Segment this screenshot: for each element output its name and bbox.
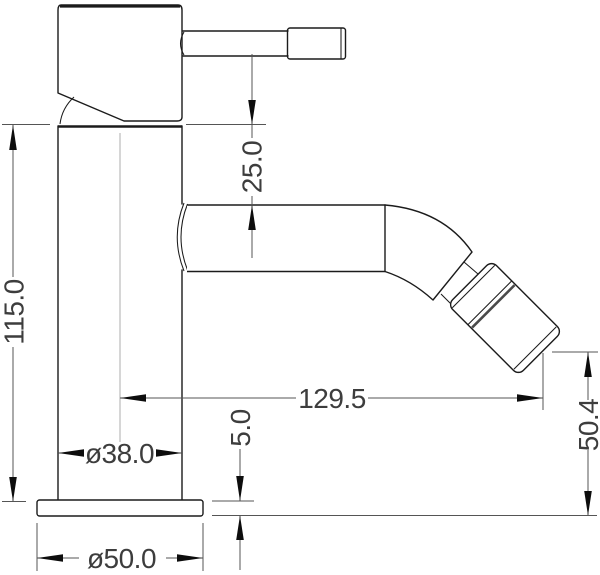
knurled-grip xyxy=(288,28,346,59)
technical-drawing-page: 115.0 25.0 129.5 50.4 ø38.0 xyxy=(0,0,600,575)
handle-housing xyxy=(58,5,182,124)
arrow-down-icon xyxy=(236,476,244,501)
arrow-down-icon xyxy=(9,477,17,502)
arrow-right-icon xyxy=(177,554,203,562)
dim-outlet-height: 50.4 xyxy=(552,352,600,516)
arrow-left-icon xyxy=(120,394,146,402)
dim-base-thickness-label: 5.0 xyxy=(225,409,256,446)
dim-body-diameter: ø38.0 xyxy=(58,438,182,469)
aerator-body xyxy=(448,261,563,376)
spout-body-junction-arcs xyxy=(177,203,187,271)
arrow-right-icon xyxy=(156,449,182,457)
handle-housing-outline xyxy=(58,5,182,121)
lever-arm xyxy=(183,31,288,56)
dim-overall-height: 115.0 xyxy=(0,125,50,502)
dim-spout-reach: 129.5 xyxy=(120,353,543,414)
housing-cut-arc xyxy=(60,97,74,124)
base-plate xyxy=(37,500,203,516)
base-plate-outline xyxy=(37,500,203,516)
arrow-down-icon xyxy=(248,100,256,125)
dim-overall-height-label: 115.0 xyxy=(0,279,29,345)
arrow-left-icon xyxy=(58,449,84,457)
dim-base-diameter: ø50.0 xyxy=(37,523,203,574)
spout-tube xyxy=(187,205,472,300)
dim-base-thickness: 5.0 xyxy=(212,409,256,570)
arrow-left-icon xyxy=(37,554,63,562)
mixer-tap-technical-drawing: 115.0 25.0 129.5 50.4 ø38.0 xyxy=(0,0,600,575)
dim-spout-reach-label: 129.5 xyxy=(298,383,366,414)
arrow-up-icon xyxy=(9,125,17,150)
dim-base-thickness-lines xyxy=(212,449,254,570)
dim-base-diameter-label: ø50.0 xyxy=(87,543,156,574)
dim-spout-top-offset-label: 25.0 xyxy=(236,141,267,194)
dim-body-diameter-label: ø38.0 xyxy=(85,438,154,469)
aerator xyxy=(448,261,563,376)
arrow-right-icon xyxy=(517,394,543,402)
arrow-up-icon xyxy=(584,352,592,377)
dim-outlet-height-label: 50.4 xyxy=(573,399,600,452)
arrow-up-icon xyxy=(236,516,244,541)
arrow-down-icon xyxy=(584,491,592,516)
spout xyxy=(187,205,478,306)
handle-lever xyxy=(181,28,346,59)
